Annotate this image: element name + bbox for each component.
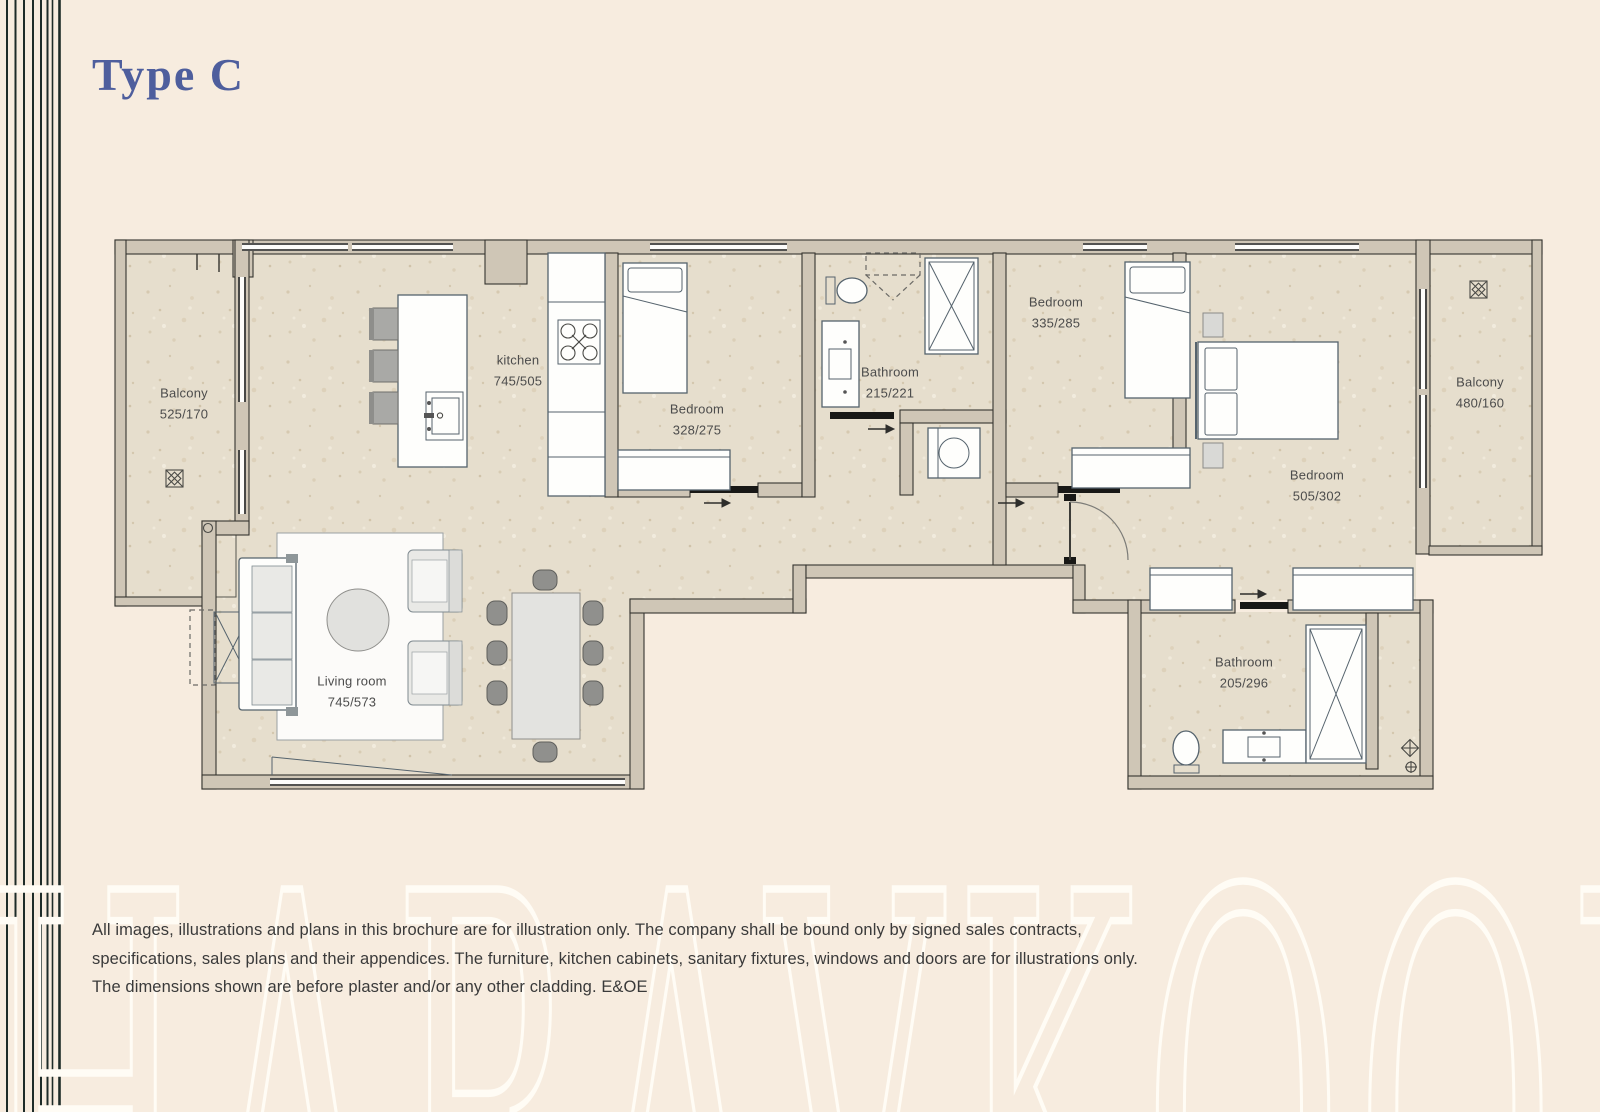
room-label-bathroom-1: Bathroom215/221	[861, 363, 919, 404]
room-label-balcony-left: Balcony525/170	[160, 384, 208, 425]
sofa	[239, 554, 298, 716]
disclaimer-line: All images, illustrations and plans in t…	[92, 916, 1138, 945]
page-title: Type C	[92, 48, 245, 101]
disclaimer: All images, illustrations and plans in t…	[92, 916, 1138, 1002]
disclaimer-line: specifications, sales plans and their ap…	[92, 945, 1138, 974]
room-label-bathroom-2: Bathroom205/296	[1215, 653, 1273, 694]
washing-machine-icon	[928, 428, 980, 478]
bar-stool	[369, 308, 398, 424]
vanity-icon	[1223, 730, 1306, 763]
room-label-bedroom-2: Bedroom335/285	[1029, 293, 1083, 334]
disclaimer-line: The dimensions shown are before plaster …	[92, 973, 1138, 1002]
vanity-icon	[822, 321, 859, 407]
room-label-balcony-right: Balcony480/160	[1456, 373, 1504, 414]
shower-icon	[925, 258, 978, 354]
room-label-living-room: Living room745/573	[317, 672, 386, 713]
room-label-kitchen: kitchen745/505	[494, 351, 542, 392]
kitchen-counter	[548, 253, 605, 496]
balcony-left-floor	[126, 252, 236, 597]
bathtub-icon	[1306, 625, 1366, 763]
coffee-table	[327, 589, 389, 651]
room-label-bedroom-1: Bedroom328/275	[670, 400, 724, 441]
room-label-bedroom-master: Bedroom505/302	[1290, 466, 1344, 507]
brochure-page: HARAVKOOK	[0, 0, 1600, 1112]
